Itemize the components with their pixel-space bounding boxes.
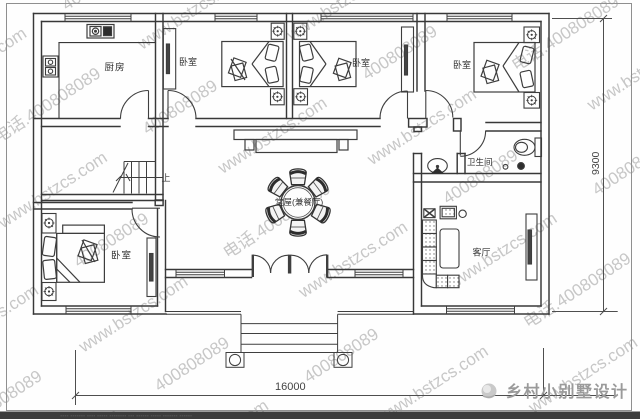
svg-text:卧室: 卧室 <box>179 56 197 67</box>
svg-text:上: 上 <box>162 173 171 183</box>
svg-text:9300: 9300 <box>590 151 602 175</box>
svg-text:乡村小别墅设计: 乡村小别墅设计 <box>506 382 629 401</box>
svg-text:▪▪▪▪ ▪▪▪▪▪▪▪ ▪▪▪▪ ▪▪▪▪▪ ▪▪▪: ▪▪▪▪ ▪▪▪▪▪▪▪ ▪▪▪▪ ▪▪▪▪▪ ▪▪▪▪▪▪▪▪ ▪▪▪ ▪▪▪… <box>60 414 192 419</box>
svg-text:堂屋(兼餐厅): 堂屋(兼餐厅) <box>275 197 323 207</box>
svg-text:卧室: 卧室 <box>453 59 471 70</box>
svg-text:卧室: 卧室 <box>352 57 370 68</box>
svg-text:厨房: 厨房 <box>105 62 126 74</box>
svg-text:卫生间: 卫生间 <box>467 157 493 167</box>
svg-text:客厅: 客厅 <box>473 247 491 258</box>
svg-text:16000: 16000 <box>275 381 306 393</box>
svg-text:卧室: 卧室 <box>111 250 132 262</box>
